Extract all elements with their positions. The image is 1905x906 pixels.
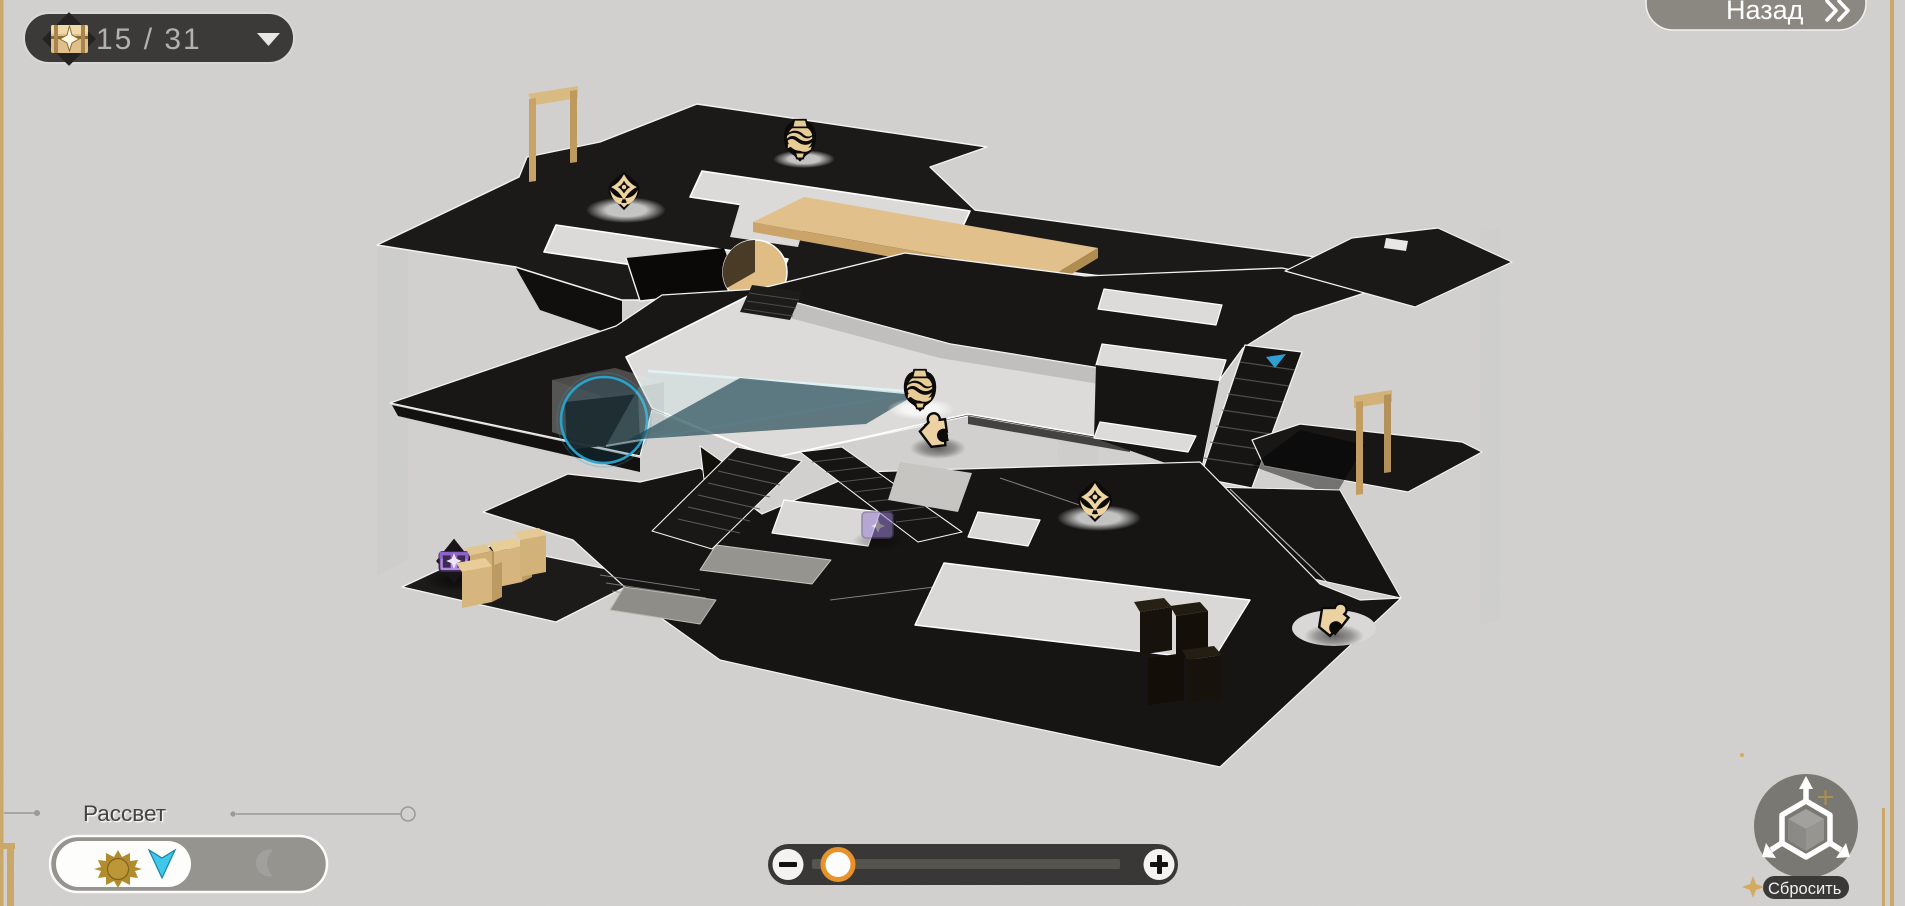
svg-text:Сбросить: Сбросить xyxy=(1768,880,1841,898)
svg-text:Назад: Назад xyxy=(1726,0,1804,25)
svg-text:15 / 31: 15 / 31 xyxy=(96,23,202,56)
svg-text:Рассвет: Рассвет xyxy=(83,801,166,826)
